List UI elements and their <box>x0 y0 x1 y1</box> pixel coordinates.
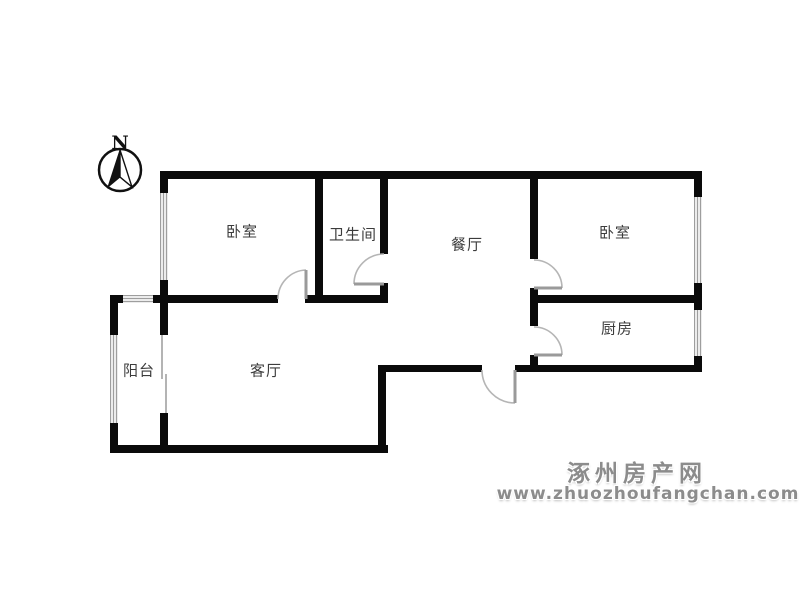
floorplan-canvas: N 卧室 卫生间 餐厅 卧室 厨房 客厅 阳台 涿州房产网 www.zhuozh… <box>0 0 800 600</box>
room-label-dining: 餐厅 <box>451 234 483 255</box>
watermark-site-url: www.zhuozhoufangchan.com <box>497 484 800 504</box>
compass-needle-dark-half <box>108 150 120 187</box>
bedroom-right-door-arc <box>534 260 562 288</box>
compass-needle-light-half <box>120 150 132 187</box>
room-label-balcony: 阳台 <box>123 360 155 381</box>
room-label-bedroom-right: 卧室 <box>599 222 631 243</box>
bathroom-door-arc <box>354 254 384 284</box>
room-label-kitchen: 厨房 <box>601 318 633 339</box>
compass-icon: N <box>99 132 141 191</box>
kitchen-door-arc <box>534 327 562 355</box>
room-label-bedroom-left: 卧室 <box>226 221 258 242</box>
room-label-bathroom: 卫生间 <box>329 224 377 245</box>
room-label-living: 客厅 <box>250 360 282 381</box>
compass-north-label: N <box>111 132 128 154</box>
bedroom-left-door-arc <box>278 270 306 299</box>
entry-door-arc <box>482 370 515 403</box>
watermark-site-name: 涿州房产网 <box>567 454 707 488</box>
doors-and-compass-layer: N <box>0 0 800 600</box>
